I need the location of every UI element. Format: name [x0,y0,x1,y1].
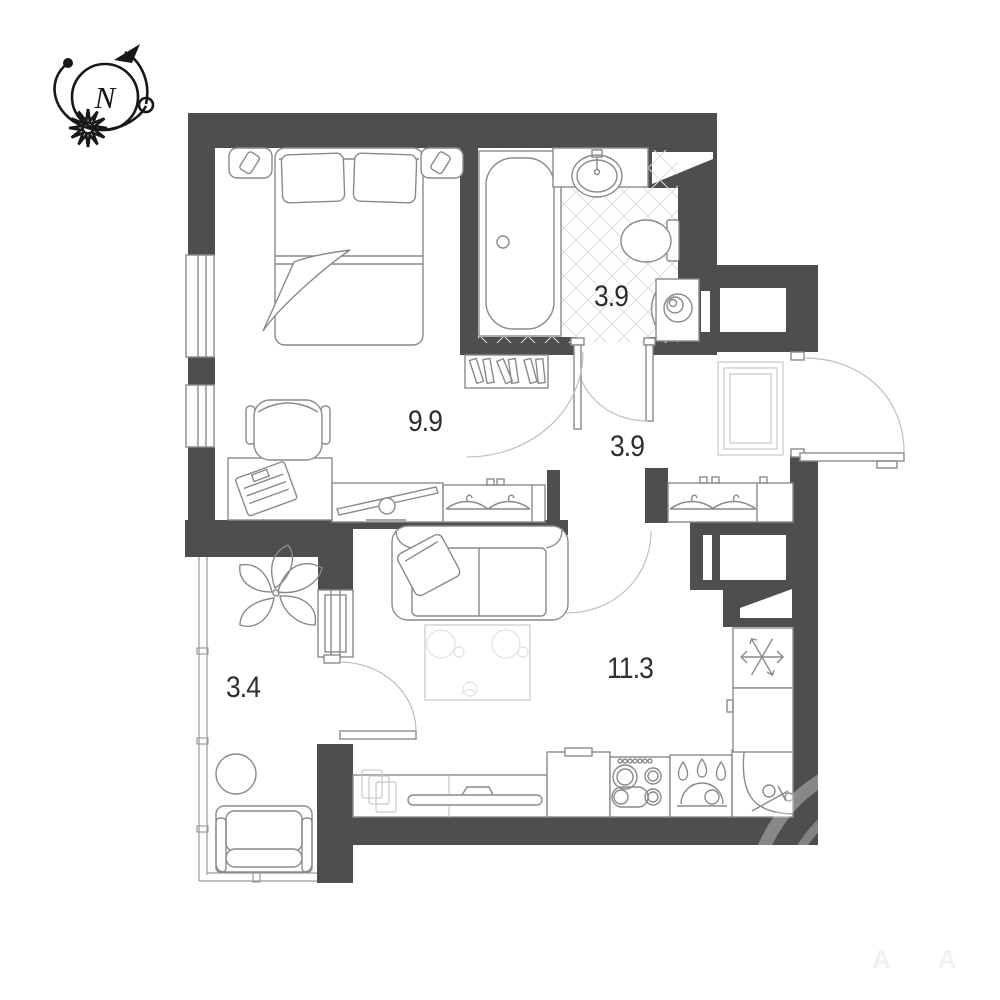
wall-segment [188,113,717,148]
door-swing-arc [804,358,904,452]
toilet-bowl [621,220,671,262]
round-table [216,754,256,794]
plant-icon [240,545,322,626]
dish-dryer [670,755,732,817]
fridge [733,628,793,688]
bedroom-window [186,255,214,357]
floor-plan-page: 9.9 3.9 3.9 11.3 3.4 N A A [0,0,1000,1000]
duct-shaft [720,288,786,332]
desk [228,458,332,520]
doormat [718,362,783,455]
watermark-letter: A [938,944,957,974]
pillow [353,153,417,203]
watermark-letter: A [872,944,891,974]
bathtub [479,151,561,336]
wall-segment [460,146,478,341]
bed [263,148,423,345]
bathroom-door [575,338,655,421]
bedroom-window [186,385,214,447]
tv-cabinet [353,770,547,817]
wall-segment [188,113,215,255]
room-area-label-bedroom: 9.9 [408,403,442,437]
toilet [621,220,679,262]
room-area-label-bathroom: 3.9 [594,278,628,312]
compass-rose: N [55,44,153,147]
compass-north-label: N [94,80,118,115]
room-area-label-living: 11.3 [607,650,653,684]
wall-segment [353,817,818,845]
tv-stand [332,483,443,522]
entrance-door [791,352,904,468]
desk-chair [246,400,330,460]
hallway [668,362,793,522]
base-cabinet [727,688,793,752]
door-leaf [646,345,653,421]
compass-dot [63,58,73,68]
counter [547,748,610,817]
bench [216,806,312,872]
wall-segment [188,447,215,522]
plate-icon [492,630,520,658]
wall-segment [188,357,215,385]
sofa [392,526,568,620]
room-area-label-balcony: 3.4 [226,669,260,703]
balcony [216,545,322,872]
wardrobe [668,477,793,522]
door-swing-arc [575,349,648,421]
wall-segment [790,455,818,523]
door-leaf [800,453,904,461]
wall-segment [786,535,818,580]
door-leaf [340,731,416,739]
wall-segment [318,557,353,590]
coffee-table [425,625,530,700]
wall-segment [690,535,703,580]
wall-segment [185,520,353,557]
wall-pier [645,468,668,523]
nightstand [229,148,272,178]
door-swing-arc [340,662,416,731]
bathroom [478,148,699,343]
plate-icon [427,630,455,658]
duct-slit [701,291,710,332]
wall-segment [317,744,353,883]
floor-plan-canvas: 9.9 3.9 3.9 11.3 3.4 N A A [0,0,1000,1000]
room-area-label-hallway: 3.9 [610,428,644,462]
wardrobe [443,479,545,522]
shoe-rack [465,355,548,388]
washing-machine [652,279,700,341]
nightstand [421,148,463,178]
wall-segment [712,535,720,580]
kitchen [353,628,793,817]
stove [610,757,670,817]
passage-swing-arc [566,531,651,613]
pillow [281,153,345,203]
tv-icon [408,795,542,805]
living-room [392,526,568,700]
threshold [877,461,897,468]
door-leaf [574,345,581,429]
windows [186,255,317,882]
